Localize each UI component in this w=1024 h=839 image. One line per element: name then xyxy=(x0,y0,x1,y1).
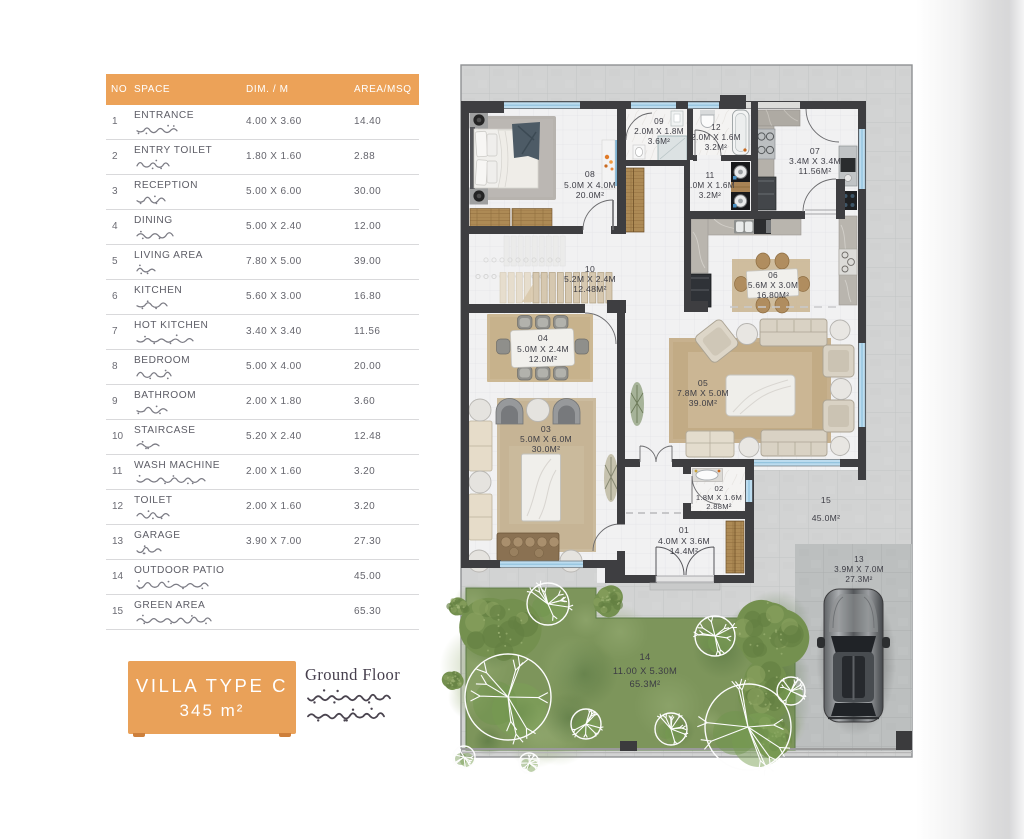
svg-text:30.0M²: 30.0M² xyxy=(532,444,561,454)
svg-text:65.3M²: 65.3M² xyxy=(630,678,661,689)
svg-text:11.56M²: 11.56M² xyxy=(799,166,832,176)
svg-text:12.0M²: 12.0M² xyxy=(529,354,558,364)
svg-text:3.6M²: 3.6M² xyxy=(648,137,670,146)
svg-text:7.8M X 5.0M: 7.8M X 5.0M xyxy=(677,388,729,398)
svg-text:15: 15 xyxy=(821,495,831,505)
svg-text:3.2M²: 3.2M² xyxy=(705,143,727,152)
svg-text:5.0M X 2.4M: 5.0M X 2.4M xyxy=(517,344,569,354)
svg-text:27.3M²: 27.3M² xyxy=(845,575,872,584)
svg-text:2.0M X 1.8M: 2.0M X 1.8M xyxy=(634,127,684,136)
svg-text:12.48M²: 12.48M² xyxy=(573,284,607,294)
svg-text:45.0M²: 45.0M² xyxy=(812,513,841,523)
svg-text:20.0M²: 20.0M² xyxy=(576,190,605,200)
svg-text:11.00 X 5.30M: 11.00 X 5.30M xyxy=(613,665,677,676)
svg-text:5.6M X 3.0M: 5.6M X 3.0M xyxy=(748,280,798,290)
svg-text:2.0M X 1.6M: 2.0M X 1.6M xyxy=(691,133,741,142)
svg-text:05: 05 xyxy=(698,378,708,388)
svg-text:09: 09 xyxy=(654,117,664,126)
svg-text:14.4M²: 14.4M² xyxy=(670,546,699,556)
svg-text:14: 14 xyxy=(639,651,650,662)
svg-text:5.0M X 4.0M: 5.0M X 4.0M xyxy=(564,180,616,190)
svg-text:12: 12 xyxy=(711,123,721,132)
svg-text:03: 03 xyxy=(541,424,551,434)
svg-text:07: 07 xyxy=(810,146,820,156)
svg-text:2.88M²: 2.88M² xyxy=(706,502,732,511)
svg-text:5.2M X 2.4M: 5.2M X 2.4M xyxy=(564,274,616,284)
svg-text:13: 13 xyxy=(854,555,864,564)
svg-text:16.80M²: 16.80M² xyxy=(757,290,790,300)
svg-text:39.0M²: 39.0M² xyxy=(689,398,718,408)
svg-text:3.2M²: 3.2M² xyxy=(699,191,721,200)
svg-text:3.9M X 7.0M: 3.9M X 7.0M xyxy=(834,565,884,574)
svg-text:10: 10 xyxy=(585,264,595,274)
svg-text:4.0M X 3.6M: 4.0M X 3.6M xyxy=(658,536,710,546)
svg-text:2.0M X 1.6M: 2.0M X 1.6M xyxy=(685,181,735,190)
svg-text:02: 02 xyxy=(714,484,723,493)
svg-text:01: 01 xyxy=(679,525,689,535)
svg-text:08: 08 xyxy=(585,169,595,179)
svg-text:11: 11 xyxy=(705,171,714,180)
svg-text:5.0M X 6.0M: 5.0M X 6.0M xyxy=(520,434,572,444)
svg-text:04: 04 xyxy=(538,333,548,343)
svg-text:3.4M X 3.4M: 3.4M X 3.4M xyxy=(789,156,841,166)
svg-text:06: 06 xyxy=(768,270,778,280)
svg-text:1.8M X 1.6M: 1.8M X 1.6M xyxy=(696,493,742,502)
